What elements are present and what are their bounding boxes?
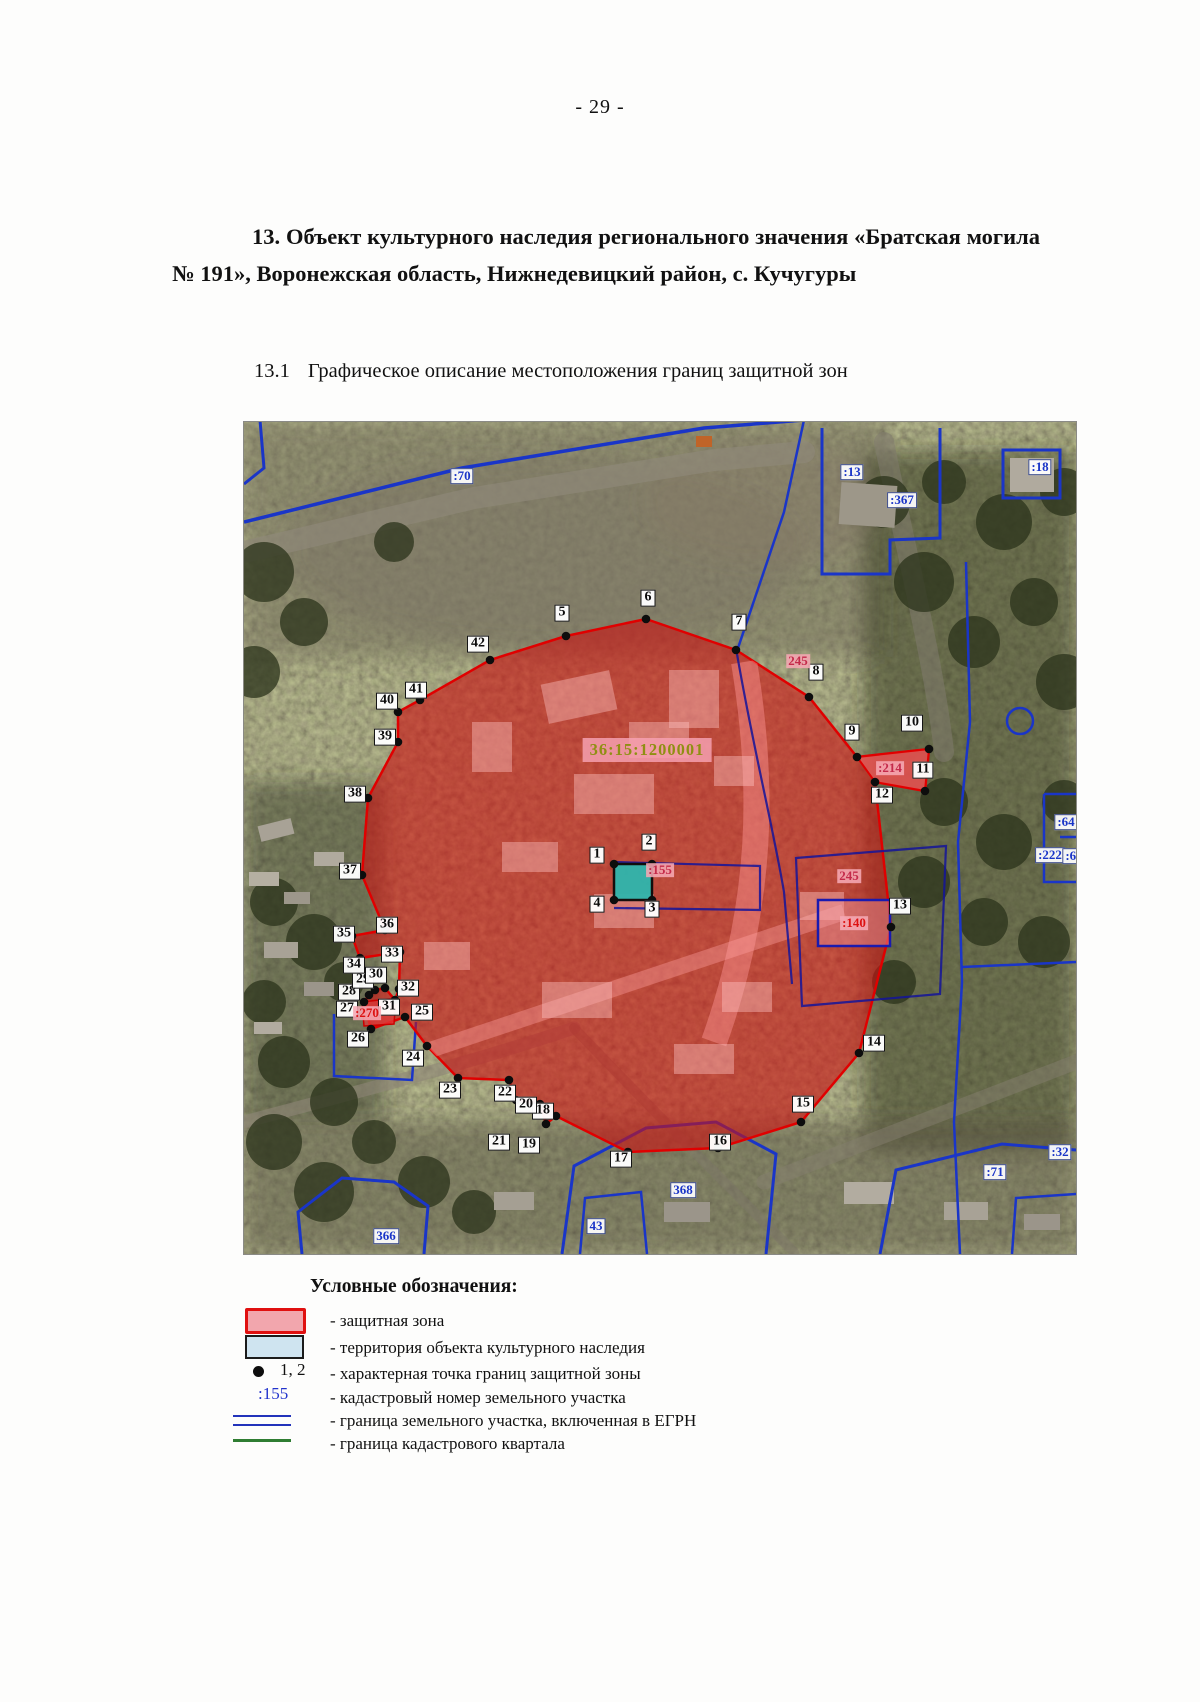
- map-point-label: 32: [397, 980, 419, 997]
- map-point-label: 17: [610, 1151, 632, 1168]
- legend-swatch-protective-zone: [245, 1308, 306, 1334]
- legend-item-egrn-boundary: - граница земельного участка, включенная…: [330, 1411, 696, 1431]
- map-parcel-label-blue: :64: [1054, 814, 1076, 830]
- map-parcel-label-blue: 43: [587, 1218, 606, 1234]
- map-parcel-label-pink: 245: [837, 869, 861, 883]
- map-parcel-label-blue: :71: [983, 1164, 1006, 1180]
- map-point-label: 9: [845, 724, 860, 741]
- legend-item-heritage-territory: - территория объекта культурного наследи…: [330, 1338, 645, 1358]
- map-point-label: 4: [590, 896, 605, 913]
- cadastral-map: 36:15:1200001 12345678910111213141516171…: [244, 422, 1076, 1254]
- map-point-label: 23: [439, 1082, 461, 1099]
- map-point-label: 11: [912, 762, 933, 779]
- map-point-label: 3: [645, 901, 660, 918]
- map-parcel-label-blue: :18: [1028, 459, 1051, 475]
- legend-item-cadastral-number: - кадастровый номер земельного участка: [330, 1388, 626, 1408]
- section-heading: 13. Объект культурного наследия регионал…: [172, 218, 1040, 292]
- map-point-label: 26: [347, 1031, 369, 1048]
- map-point-label: 31: [378, 999, 400, 1016]
- map-parcel-label-blue: :367: [887, 492, 917, 508]
- page-number: - 29 -: [0, 96, 1200, 119]
- map-point-label: 35: [333, 926, 355, 943]
- map-parcel-label-pink: :155: [646, 863, 674, 877]
- subsection-title: Графическое описание местоположения гран…: [308, 360, 848, 382]
- map-point-label: 42: [467, 636, 489, 653]
- map-point-label: 15: [792, 1096, 814, 1113]
- map-point-label: 33: [381, 946, 403, 963]
- map-point-label: 8: [809, 664, 824, 681]
- map-point-label: 14: [863, 1035, 885, 1052]
- map-parcel-label-pink: 245: [786, 654, 810, 668]
- map-point-label: 25: [411, 1004, 433, 1021]
- map-parcel-label-blue: :222: [1035, 847, 1065, 863]
- legend-cadastral-symbol: :155: [258, 1384, 288, 1404]
- legend-quarter-line-icon: [233, 1439, 291, 1442]
- map-point-label: 34: [343, 957, 365, 974]
- map-point-label: 19: [518, 1137, 540, 1154]
- map-point-label: 2: [642, 834, 657, 851]
- map-point-label: 20: [515, 1097, 537, 1114]
- map-parcel-label-blue: :70: [450, 468, 473, 484]
- map-point-label: 38: [344, 786, 366, 803]
- legend-swatch-heritage-territory: [245, 1335, 304, 1359]
- legend-item-quarter-boundary: - граница кадастрового квартала: [330, 1434, 565, 1454]
- map-point-label: 13: [889, 898, 911, 915]
- document-page: - 29 - 13. Объект культурного наследия р…: [0, 0, 1200, 1702]
- map-point-label: 37: [339, 863, 361, 880]
- legend-point-symbol: 1, 2: [280, 1360, 306, 1380]
- legend-point-dot-icon: [253, 1366, 264, 1377]
- map-labels-layer: 36:15:1200001 12345678910111213141516171…: [244, 422, 1076, 1254]
- map-point-label: 6: [641, 590, 656, 607]
- subsection-number: 13.1: [254, 360, 290, 382]
- legend-egrn-line-icon: [233, 1415, 291, 1426]
- map-point-label: 39: [374, 729, 396, 746]
- map-parcel-label-blue: :13: [840, 464, 863, 480]
- map-point-label: 40: [376, 693, 398, 710]
- map-point-label: 21: [488, 1134, 510, 1151]
- map-parcel-label-pink: :140: [840, 916, 868, 930]
- map-point-label: 7: [732, 614, 747, 631]
- map-point-label: 12: [871, 787, 893, 804]
- map-point-label: 41: [405, 682, 427, 699]
- map-parcel-label-blue: 368: [670, 1182, 696, 1198]
- legend-title: Условные обозначения:: [310, 1276, 518, 1298]
- map-parcel-label-blue: 366: [373, 1228, 399, 1244]
- cadastral-quarter-label: 36:15:1200001: [583, 738, 712, 762]
- map-parcel-label-blue: :63: [1062, 848, 1076, 864]
- map-point-label: 24: [402, 1050, 424, 1067]
- map-point-label: 10: [901, 715, 923, 732]
- subsection-heading: 13.1Графическое описание местоположения …: [254, 360, 848, 383]
- map-parcel-label-blue: :32: [1048, 1144, 1071, 1160]
- map-point-label: 16: [709, 1134, 731, 1151]
- legend-item-protective-zone: - защитная зона: [330, 1311, 444, 1331]
- map-point-label: 22: [494, 1085, 516, 1102]
- map-point-label: 36: [376, 917, 398, 934]
- map-parcel-label-pink: :214: [876, 761, 904, 775]
- map-point-label: 5: [555, 605, 570, 622]
- map-point-label: 1: [590, 847, 605, 864]
- map-parcel-label-pink: :270: [353, 1006, 381, 1020]
- map-point-label: 30: [365, 967, 387, 984]
- legend-item-characteristic-point: - характерная точка границ защитной зоны: [330, 1364, 641, 1384]
